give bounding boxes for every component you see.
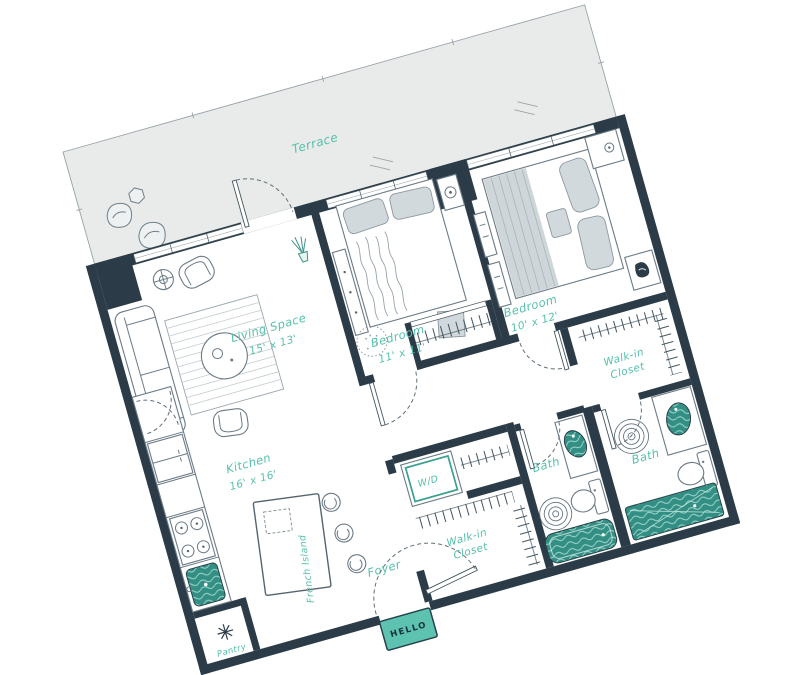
kitchen-island: French Island (253, 494, 333, 609)
potted-plant (291, 235, 312, 264)
doormat: HELLO (379, 608, 437, 651)
foyer-label: Foyer (366, 557, 404, 580)
entry-door-leaf (426, 566, 477, 594)
closet-rack (459, 444, 510, 469)
bedroom-2-door (519, 330, 568, 379)
closet-rack (577, 307, 665, 342)
armchair-bottom (212, 407, 249, 437)
room-pantry: Pantry (210, 620, 248, 660)
shower-2 (625, 482, 725, 540)
bath-1-label: Bath (530, 454, 561, 475)
floor-plan: Terrace (0, 0, 800, 675)
toilet-1 (567, 479, 609, 521)
star-symbol (216, 622, 236, 642)
side-table-lamp (151, 267, 176, 292)
armchair-top (176, 253, 218, 292)
bedroom-1-door (369, 371, 427, 426)
floor-plan-canvas: Terrace (0, 0, 800, 675)
